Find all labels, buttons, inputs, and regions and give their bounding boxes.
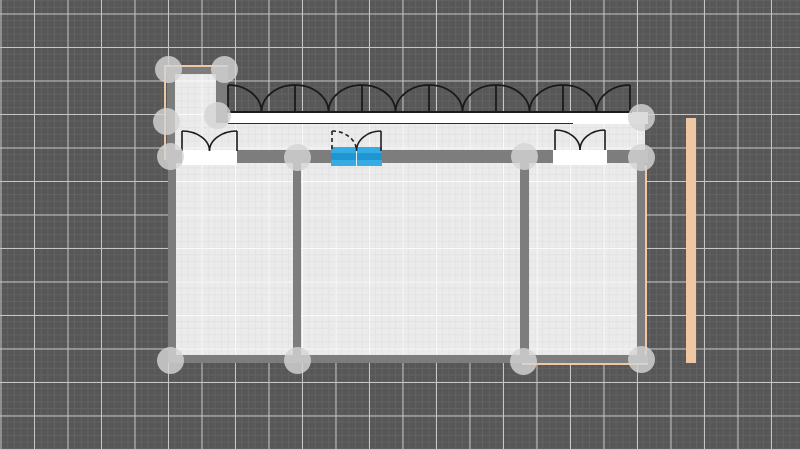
handle-tower-right-mid[interactable] — [204, 102, 231, 129]
double-door-center-selected-threshold[interactable] — [331, 147, 382, 166]
handle-tower-top-left[interactable] — [155, 56, 182, 83]
handle-tower-top-right[interactable] — [211, 56, 238, 83]
corridor-floor[interactable] — [216, 123, 645, 151]
side-wall-strip[interactable] — [686, 118, 696, 363]
double-door-left-threshold[interactable] — [182, 150, 237, 165]
partition-wall-2[interactable] — [520, 163, 529, 355]
partition-wall-1[interactable] — [293, 163, 301, 355]
double-swing-window[interactable] — [429, 85, 496, 112]
left-wall[interactable] — [168, 151, 176, 363]
handle-partition-1-bottom[interactable] — [284, 347, 311, 374]
handle-partition-1-top[interactable] — [284, 144, 311, 171]
main-room-floor[interactable] — [176, 163, 637, 355]
terrace-deck[interactable] — [228, 112, 648, 124]
right-wall[interactable] — [637, 155, 645, 363]
double-door-right-threshold[interactable] — [553, 150, 607, 165]
double-swing-window[interactable] — [228, 85, 295, 112]
handle-bottom-right[interactable] — [628, 346, 655, 373]
french-window-row[interactable] — [228, 85, 630, 112]
handle-front-wall-right[interactable] — [628, 144, 655, 171]
handle-front-wall-left[interactable] — [157, 143, 184, 170]
double-swing-window[interactable] — [563, 85, 630, 112]
bottom-wall[interactable] — [168, 355, 648, 363]
handle-bottom-left[interactable] — [157, 347, 184, 374]
double-swing-window[interactable] — [496, 85, 563, 112]
double-swing-window[interactable] — [362, 85, 429, 112]
handle-tower-left-mid[interactable] — [153, 108, 180, 135]
handle-partition-2-bottom[interactable] — [510, 348, 537, 375]
handle-partition-2-top[interactable] — [511, 143, 538, 170]
floor-plan-canvas[interactable] — [0, 0, 800, 450]
double-door-center-leaf-split — [356, 147, 358, 166]
right-wall-outline — [645, 165, 647, 363]
double-swing-window[interactable] — [295, 85, 362, 112]
handle-terrace-right[interactable] — [628, 104, 655, 131]
